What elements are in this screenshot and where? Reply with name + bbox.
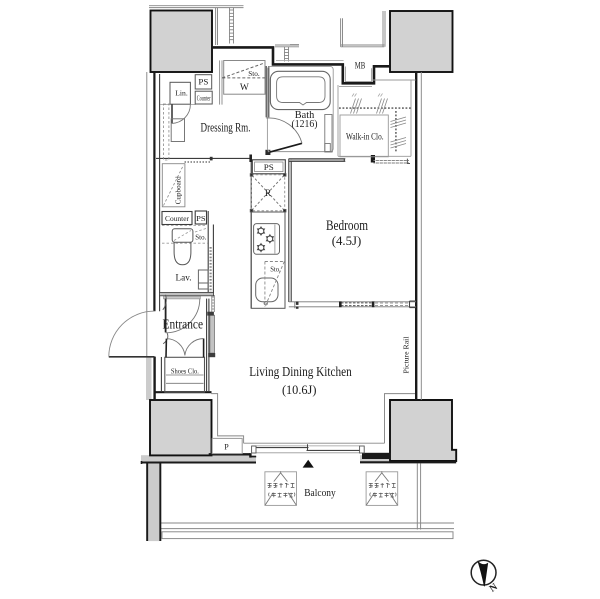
- svg-text:Lav.: Lav.: [176, 273, 192, 283]
- svg-text:Walk-in Clo.: Walk-in Clo.: [346, 132, 384, 142]
- svg-text:Living Dining Kitchen: Living Dining Kitchen: [249, 365, 352, 380]
- svg-text:Dressing Rm.: Dressing Rm.: [201, 120, 251, 134]
- svg-text:(10.6J): (10.6J): [282, 382, 317, 397]
- svg-text:PS: PS: [198, 77, 208, 87]
- svg-text:Counter: Counter: [197, 96, 211, 103]
- svg-text:Sto.: Sto.: [195, 234, 206, 242]
- svg-text:Balcony: Balcony: [304, 488, 336, 499]
- svg-text:Sto.: Sto.: [270, 265, 281, 273]
- svg-text:MB: MB: [355, 61, 366, 71]
- svg-text:Entrance: Entrance: [163, 317, 204, 332]
- svg-text:W: W: [240, 83, 249, 93]
- svg-text:R: R: [265, 189, 272, 199]
- svg-text:Shoes Clo.: Shoes Clo.: [171, 366, 199, 375]
- svg-text:PS: PS: [196, 214, 206, 223]
- svg-text:Cupboard: Cupboard: [174, 176, 182, 205]
- svg-text:Lin.: Lin.: [175, 88, 188, 97]
- svg-text:(1216): (1216): [292, 119, 318, 130]
- svg-text:Sto.: Sto.: [248, 69, 260, 78]
- svg-text:Bedroom: Bedroom: [326, 218, 368, 234]
- svg-text:Counter: Counter: [165, 214, 189, 223]
- svg-text:Picture Rail: Picture Rail: [404, 336, 411, 373]
- svg-text:P: P: [224, 442, 229, 451]
- svg-text:PS: PS: [264, 162, 274, 172]
- svg-text:(4.5J): (4.5J): [332, 233, 362, 248]
